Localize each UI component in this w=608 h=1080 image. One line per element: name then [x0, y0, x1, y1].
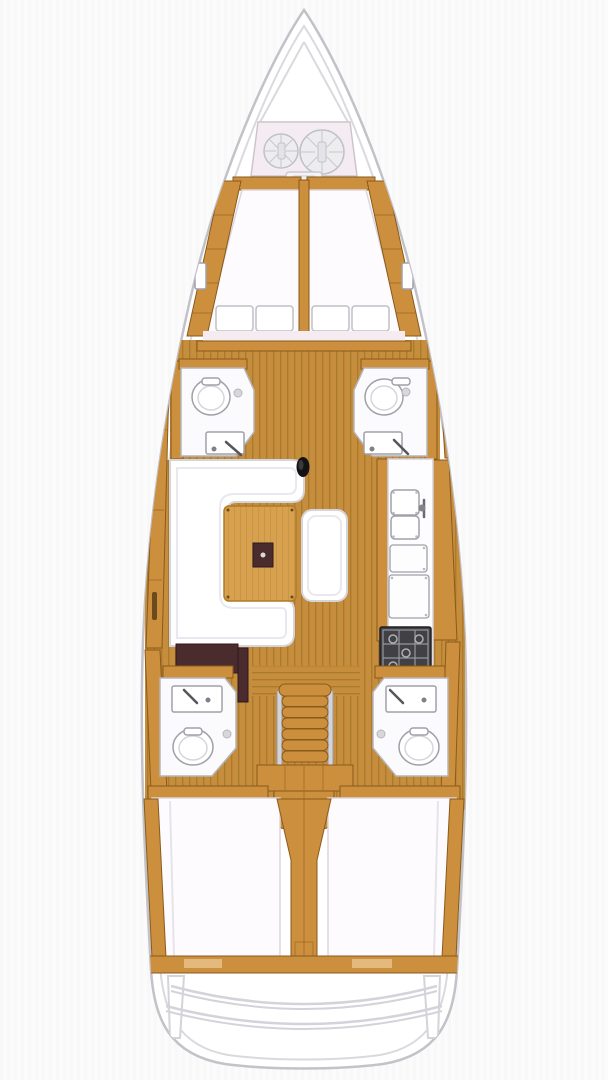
hull-window-starboard [402, 263, 413, 289]
counter-panel [389, 575, 429, 618]
engine-shelf [257, 765, 353, 791]
stair-tread [282, 718, 328, 729]
rope-coil-small [264, 134, 298, 168]
head-wall-trim [163, 666, 233, 678]
aft-head-port [160, 666, 236, 776]
stair-tread [282, 707, 328, 718]
galley-trim [377, 459, 388, 641]
salon-bench [302, 510, 347, 601]
aft-cabin-beam-starboard [340, 786, 460, 799]
rope-coil-large [300, 130, 344, 174]
shower-drain [234, 389, 242, 397]
stair-handrail-starboard [328, 690, 333, 768]
head-wall-trim [375, 666, 445, 678]
pillow [312, 306, 349, 331]
table-inlay-dot [261, 553, 266, 558]
mast [297, 457, 310, 477]
stern-latch [184, 959, 222, 968]
salon-table [224, 506, 296, 601]
forward-head-starboard [354, 359, 437, 459]
stair-top-sill [279, 684, 331, 696]
v-berth [187, 177, 421, 351]
sink [172, 686, 222, 712]
toilet [173, 728, 213, 765]
stair-tread [282, 751, 328, 762]
sink [386, 686, 436, 712]
aft-head-starboard [373, 666, 448, 776]
shower-drain [377, 730, 385, 738]
stern-latch [352, 959, 392, 968]
sailboat-floor-plan [0, 0, 608, 1080]
aft-cabins [144, 786, 464, 960]
nav-seat-back [238, 648, 248, 702]
sink [206, 432, 244, 455]
sink [364, 432, 408, 454]
berth-head-beam-starboard [307, 177, 375, 190]
interior [144, 42, 465, 1038]
aft-cabin-beam-port [148, 786, 268, 799]
pillow [216, 306, 253, 331]
stair-tread [282, 696, 328, 707]
stair-handrail-port [277, 690, 282, 768]
pillow [352, 306, 389, 331]
forward-head-port [171, 359, 254, 459]
stair-tread [282, 740, 328, 751]
galley [377, 459, 433, 681]
side-locker-slot-port [152, 592, 157, 620]
toilet [192, 378, 230, 415]
berth-head-beam-port [233, 177, 301, 190]
shower-drain [223, 730, 231, 738]
stair-tread [282, 729, 328, 740]
berth-step-trim [197, 341, 411, 351]
deck-plan-stage [0, 0, 608, 1080]
pillow [256, 306, 293, 331]
toilet [399, 728, 439, 765]
counter-panel [390, 545, 427, 572]
galley-hull-wedge [433, 460, 457, 640]
hull-window-port [195, 263, 206, 289]
shower-drain [402, 388, 410, 396]
berth-center-divider [299, 180, 309, 337]
